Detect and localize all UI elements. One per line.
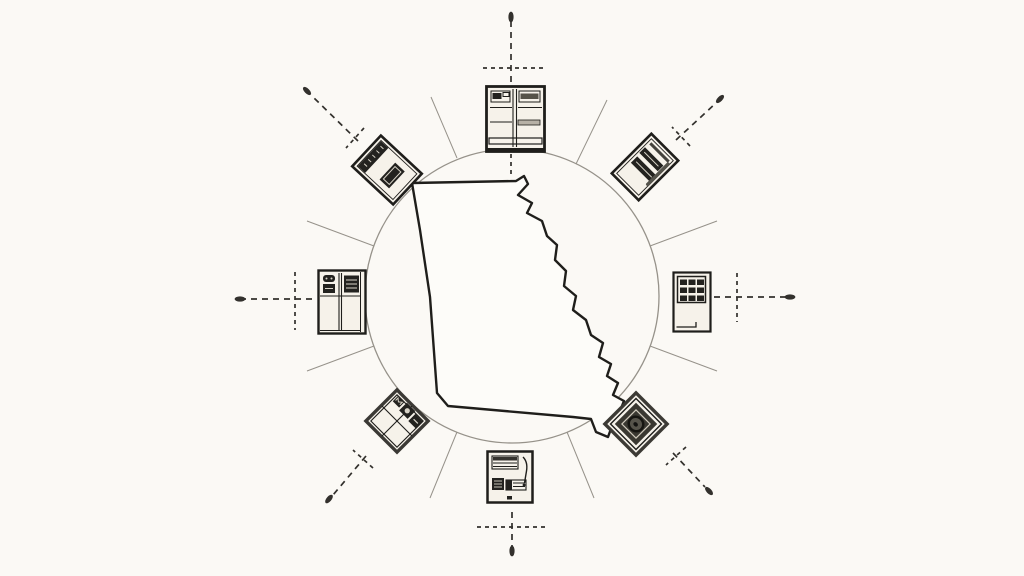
dashed-arrow-north-west [302,86,364,148]
ray-line [567,432,594,498]
dashed-arrow-east [714,273,795,322]
ray-line [430,432,457,498]
ray-line [650,346,717,371]
dashed-arrow-south-west [324,450,373,505]
ray-line [431,97,457,158]
arrow-dot [509,546,514,557]
tilted-ledger-card-icon [612,134,678,200]
diagram-scene [0,0,1024,576]
georgia-map [412,176,630,437]
double-door-cabinet-icon [487,87,545,152]
illustration-canvas [0,0,1024,576]
ray-line [650,221,717,246]
appliance-panel-icon [319,271,366,334]
quadrant-diamond-icon [366,390,428,452]
georgia-state-outline [412,176,630,437]
ray-line [576,100,607,164]
dashed-arrow-south [477,512,549,556]
dashed-arrow-west [235,272,312,330]
keypad-panel-icon [674,273,711,332]
striped-document-card-icon [488,452,533,503]
arrow-dot [508,12,513,23]
dashed-arrow-north-east [672,94,725,146]
arrow-dot [704,485,715,496]
ray-line [307,221,374,246]
arrow-dot [235,296,246,301]
arrow-dot [715,94,726,105]
arrow-dot [302,86,313,97]
ray-line [307,346,374,371]
dashed-arrow-south-east [666,447,714,497]
arrow-dot [785,294,796,299]
arrow-dot [324,493,335,504]
tilted-document-icon [352,136,422,205]
